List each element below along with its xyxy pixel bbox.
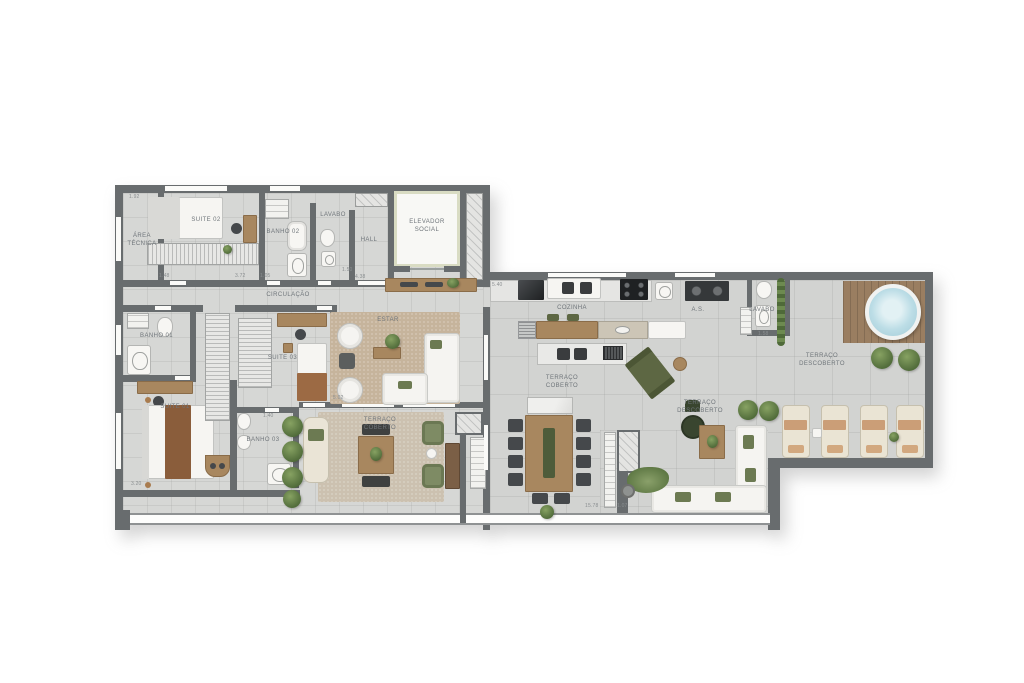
- dining-chair: [508, 419, 523, 432]
- plant: [738, 400, 758, 420]
- door: [155, 306, 171, 310]
- dining-chair: [576, 473, 591, 486]
- window: [116, 325, 121, 355]
- room-label-terraco-descoberto-2: TERRAÇO DESCOBERTO: [668, 400, 732, 416]
- side-table: [339, 353, 355, 369]
- plant: [707, 435, 718, 448]
- door: [265, 408, 279, 412]
- dining-chair: [508, 455, 523, 468]
- plant: [540, 505, 554, 519]
- wall: [115, 510, 130, 530]
- jacuzzi: [865, 284, 921, 340]
- window: [675, 273, 715, 277]
- pillow: [745, 468, 756, 482]
- headboard: [142, 405, 149, 479]
- pillow: [398, 381, 412, 389]
- lounger-stripe: [898, 420, 921, 430]
- door: [318, 281, 331, 285]
- dim-label: 1.92: [129, 194, 140, 200]
- dining-chair: [532, 493, 548, 504]
- room-label-terraco-coberto-2: TERRAÇO COBERTO: [350, 417, 410, 433]
- window: [116, 413, 121, 469]
- bed-blanket: [297, 373, 327, 401]
- bench: [362, 476, 390, 487]
- dining-chair: [508, 437, 523, 450]
- lounger-stripe: [784, 420, 807, 430]
- plant: [283, 490, 301, 508]
- door: [358, 281, 386, 285]
- room-label-terraco-coberto-1: TERRAÇO COBERTO: [532, 375, 592, 391]
- wall: [770, 458, 933, 468]
- nightstand-lamp: [145, 482, 151, 488]
- wall: [388, 266, 410, 272]
- pillow: [430, 340, 442, 349]
- window: [548, 273, 626, 277]
- door-opening: [483, 287, 490, 307]
- dining-chair: [576, 419, 591, 432]
- sink-module: [547, 278, 601, 299]
- plant: [447, 278, 459, 288]
- island-grate: [518, 321, 536, 339]
- sun-lounger: [782, 405, 810, 458]
- shaft-hatch: [466, 193, 483, 280]
- decor-object: [400, 282, 418, 287]
- lounger-pad: [902, 445, 918, 453]
- toilet: [237, 413, 251, 430]
- dim-label: 15.78: [585, 503, 599, 509]
- sink: [321, 251, 336, 267]
- plant: [759, 401, 779, 421]
- kitchen-island: [536, 321, 598, 339]
- gourmet-sink: [557, 348, 570, 360]
- island-cabinet: [648, 321, 686, 339]
- floor-plan: ELEVADOR SOCIAL: [115, 185, 930, 530]
- kitchen-sink: [562, 282, 574, 294]
- plant: [370, 447, 382, 461]
- sofa: [382, 373, 428, 405]
- wardrobe: [238, 318, 272, 388]
- dresser: [205, 455, 230, 477]
- room-label-suite-03: SUITE 03: [255, 355, 310, 363]
- armchair: [422, 464, 444, 488]
- window: [270, 186, 300, 191]
- room-label-cozinha: COZINHA: [542, 305, 602, 313]
- island-sink: [615, 326, 630, 334]
- fridge: [518, 280, 544, 300]
- cushion: [308, 429, 324, 441]
- sink: [287, 253, 307, 277]
- room-label-suite-01: SUITE 01: [145, 404, 205, 412]
- plant: [385, 334, 400, 349]
- armchair: [422, 421, 444, 445]
- door: [267, 281, 280, 285]
- column: [455, 412, 483, 435]
- dim-label: 1.40: [263, 413, 274, 419]
- lounger-pad: [866, 445, 882, 453]
- window: [165, 186, 227, 191]
- room-label-elevador-social: ELEVADOR SOCIAL: [396, 219, 458, 235]
- decor-object: [425, 282, 443, 287]
- chair: [295, 329, 306, 340]
- plant: [282, 441, 303, 462]
- elevator-door: [410, 268, 444, 270]
- room-label-as: A.S.: [678, 307, 718, 315]
- table-runner: [543, 428, 555, 478]
- dim-label: 3.20: [131, 481, 142, 487]
- laundry-sink: [655, 282, 673, 300]
- dim-label: 5.02: [333, 395, 344, 401]
- wall: [925, 272, 933, 468]
- kitchen-sink: [580, 282, 592, 294]
- terrace-railing: [130, 513, 770, 525]
- dresser-knob: [219, 463, 225, 469]
- wardrobe: [147, 243, 259, 265]
- plant: [282, 416, 303, 437]
- door: [303, 403, 325, 407]
- coffee-table: [373, 347, 401, 359]
- vanity-sink: [127, 345, 151, 375]
- armchair: [337, 323, 363, 349]
- plant: [282, 467, 303, 488]
- gourmet-sink: [574, 348, 587, 360]
- side-table: [812, 428, 822, 438]
- room-label-lavabo-2: LAVABO: [742, 307, 782, 315]
- marble-buffet: [527, 397, 573, 414]
- outdoor-sofa: [651, 485, 767, 513]
- lounger-stripe: [823, 420, 846, 430]
- door: [170, 281, 186, 285]
- dining-chair: [508, 473, 523, 486]
- lounger-stripe: [862, 420, 885, 430]
- service-panel: [604, 432, 616, 508]
- wall: [230, 380, 237, 492]
- nightstand-lamp: [145, 397, 151, 403]
- shaft-hatch: [355, 193, 388, 207]
- column: [617, 430, 640, 473]
- sliding-door: [484, 335, 488, 380]
- shower: [265, 199, 289, 219]
- room-label-banho-01: BANHO 01: [129, 333, 184, 341]
- pillow: [715, 492, 731, 502]
- room-label-area-tecnica: ÁREA TÉCNICA: [122, 233, 162, 249]
- wall: [785, 280, 790, 335]
- room-label-circulacao: CIRCULAÇÃO: [248, 292, 328, 300]
- dim-label: 1.50: [342, 267, 353, 273]
- pillow: [675, 492, 691, 502]
- cooktop: [620, 279, 648, 300]
- dresser-knob: [210, 463, 216, 469]
- door: [175, 376, 190, 380]
- bed-runner: [165, 405, 191, 479]
- dim-label: 4.38: [355, 274, 366, 280]
- stool: [547, 314, 559, 321]
- pillow: [743, 435, 754, 449]
- window: [116, 217, 121, 261]
- dim-label: 1.05: [260, 273, 271, 279]
- room-label-lavabo: LAVABO: [313, 212, 353, 220]
- plant: [889, 432, 899, 442]
- room-label-terraco-descoberto-1: TERRAÇO DESCOBERTO: [790, 353, 854, 369]
- wall: [444, 266, 466, 272]
- stool: [567, 314, 579, 321]
- plant: [898, 349, 920, 371]
- dim-label: 3.72: [235, 273, 246, 279]
- bar-cabinet: [445, 443, 460, 489]
- dining-chair: [576, 455, 591, 468]
- dim-label: 5.40: [492, 282, 503, 288]
- plant: [223, 245, 232, 254]
- wall: [460, 435, 466, 523]
- sun-lounger: [896, 405, 924, 458]
- toilet: [756, 281, 772, 299]
- shower: [127, 313, 149, 329]
- lounger-pad: [788, 445, 804, 453]
- wall: [115, 490, 300, 497]
- wall: [190, 305, 196, 378]
- room-label-estar: ESTAR: [358, 317, 418, 325]
- room-label-suite-02: SUITE 02: [176, 217, 236, 225]
- dining-chair: [554, 493, 570, 504]
- dim-label: 1.48: [159, 273, 170, 279]
- side-table: [673, 357, 687, 371]
- desk: [243, 215, 257, 243]
- plant: [871, 347, 893, 369]
- wardrobe: [205, 313, 230, 421]
- desk: [277, 313, 327, 327]
- sun-lounger: [860, 405, 888, 458]
- room-label-banho-03: BANHO 03: [242, 437, 284, 445]
- door: [317, 306, 332, 310]
- lounger-pad: [827, 445, 843, 453]
- chaise-longue: [303, 417, 329, 483]
- sliding-door: [484, 425, 488, 470]
- sun-lounger: [821, 405, 849, 458]
- nightstand: [283, 343, 293, 353]
- toilet: [320, 229, 335, 247]
- washer-dryer: [685, 281, 729, 301]
- side-table: [426, 448, 437, 459]
- room-label-hall: HALL: [349, 237, 389, 245]
- grill: [603, 346, 623, 360]
- dim-label: 1.58: [758, 331, 769, 337]
- desk: [137, 381, 193, 394]
- dim-label: 1.07: [617, 503, 628, 509]
- planter: [621, 484, 635, 498]
- dining-chair: [576, 437, 591, 450]
- room-label-banho-02: BANHO 02: [263, 229, 303, 237]
